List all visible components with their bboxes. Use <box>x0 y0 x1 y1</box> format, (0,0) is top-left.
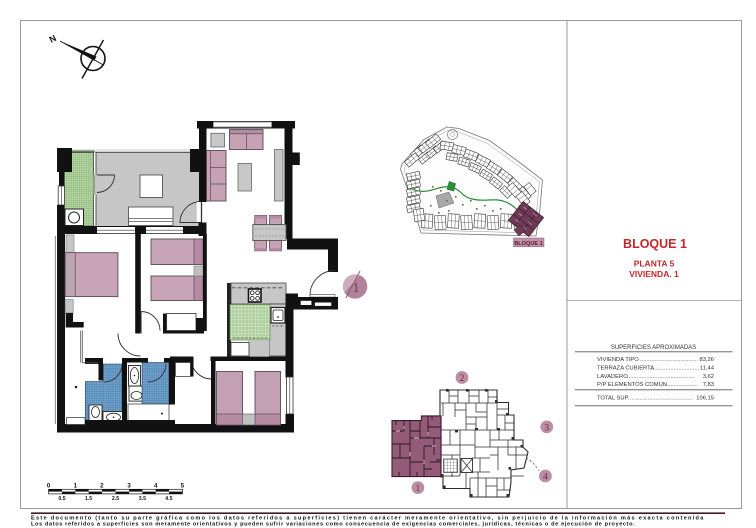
svg-text:..............................: .............................. <box>651 365 700 371</box>
svg-text:..............................: ........................................… <box>627 374 695 380</box>
svg-text:11,44: 11,44 <box>700 365 715 371</box>
svg-text:3,62: 3,62 <box>703 374 714 380</box>
svg-text:0: 0 <box>47 483 51 490</box>
svg-text:7,83: 7,83 <box>703 382 714 388</box>
svg-text:1: 1 <box>416 484 421 494</box>
svg-text:3.5: 3.5 <box>139 496 146 502</box>
svg-text:1: 1 <box>353 281 360 296</box>
svg-text:4.5: 4.5 <box>165 496 172 502</box>
svg-text:VIVIENDA TIPO: VIVIENDA TIPO <box>597 357 639 363</box>
svg-text:BLOQUE 1: BLOQUE 1 <box>623 237 687 251</box>
svg-text:1.5: 1.5 <box>85 496 92 502</box>
svg-text:BLOQUE 1: BLOQUE 1 <box>514 241 543 247</box>
svg-text:Los datos referidos a superfic: Los datos referidos a superficies son me… <box>31 521 635 527</box>
svg-text:VIVIENDA. 1: VIVIENDA. 1 <box>629 269 679 279</box>
svg-text:3: 3 <box>544 423 549 433</box>
svg-text:P/P ELEMENTOS COMUN: P/P ELEMENTOS COMUN <box>597 382 667 388</box>
svg-text:2.5: 2.5 <box>112 496 119 502</box>
svg-text:106,15: 106,15 <box>696 396 714 402</box>
svg-text:5: 5 <box>181 483 185 490</box>
svg-text:SUPERFICIES APROXIMADAS: SUPERFICIES APROXIMADAS <box>611 345 696 351</box>
svg-text:LAVADERO: LAVADERO <box>597 374 628 380</box>
svg-text:TOTAL SUP.: TOTAL SUP. <box>597 396 630 402</box>
svg-text:4: 4 <box>154 483 158 490</box>
svg-text:0.5: 0.5 <box>58 496 65 502</box>
svg-text:TERRAZA CUBIERTA: TERRAZA CUBIERTA <box>597 365 654 371</box>
svg-text:..............................: .................................... <box>640 357 698 363</box>
svg-text:1: 1 <box>74 483 78 490</box>
svg-text:2: 2 <box>100 483 104 490</box>
svg-text:3: 3 <box>127 483 131 490</box>
svg-text:2: 2 <box>460 374 465 384</box>
svg-text:..............................: ....................................... <box>630 396 693 402</box>
svg-text:.....................: ..................... <box>664 382 698 388</box>
svg-text:83,26: 83,26 <box>699 357 714 363</box>
svg-text:PLANTA 5: PLANTA 5 <box>634 259 675 269</box>
svg-text:4: 4 <box>543 472 548 482</box>
